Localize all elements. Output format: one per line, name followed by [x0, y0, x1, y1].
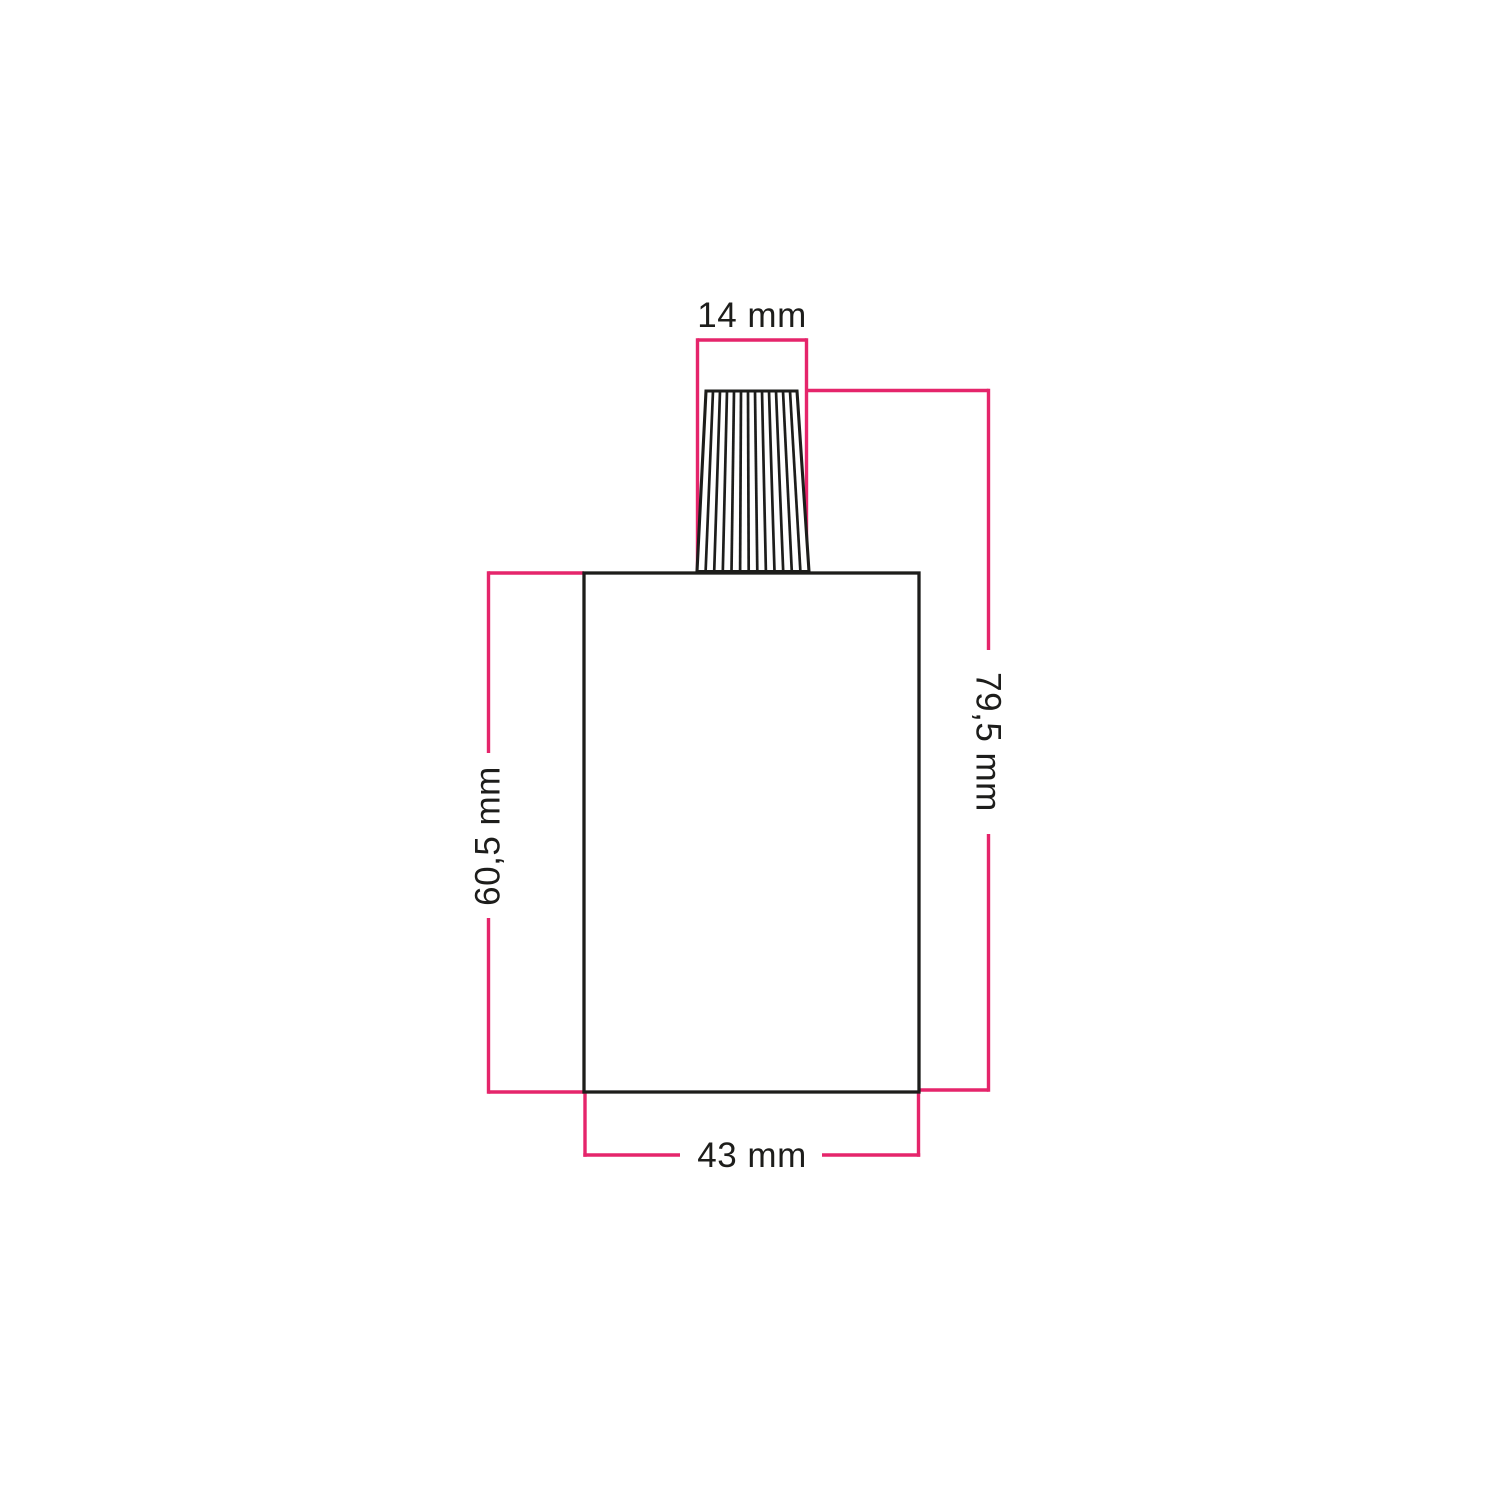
product-outline-group: [584, 391, 919, 1092]
lamp-holder-body: [584, 573, 919, 1092]
dimension-drawing-canvas: 14 mm 79,5 mm 60,5 mm 43 mm: [0, 0, 1500, 1500]
label-body-width: 43 mm: [697, 1136, 806, 1175]
label-body-height: 60,5 mm: [469, 766, 508, 906]
diagram-page: 14 mm 79,5 mm 60,5 mm 43 mm: [0, 0, 1500, 1500]
label-gland-top-width: 14 mm: [697, 296, 806, 335]
rib-line: [740, 391, 741, 572]
cable-gland-cone: [697, 391, 809, 572]
rib-line: [748, 391, 749, 572]
label-total-height: 79,5 mm: [969, 672, 1008, 812]
